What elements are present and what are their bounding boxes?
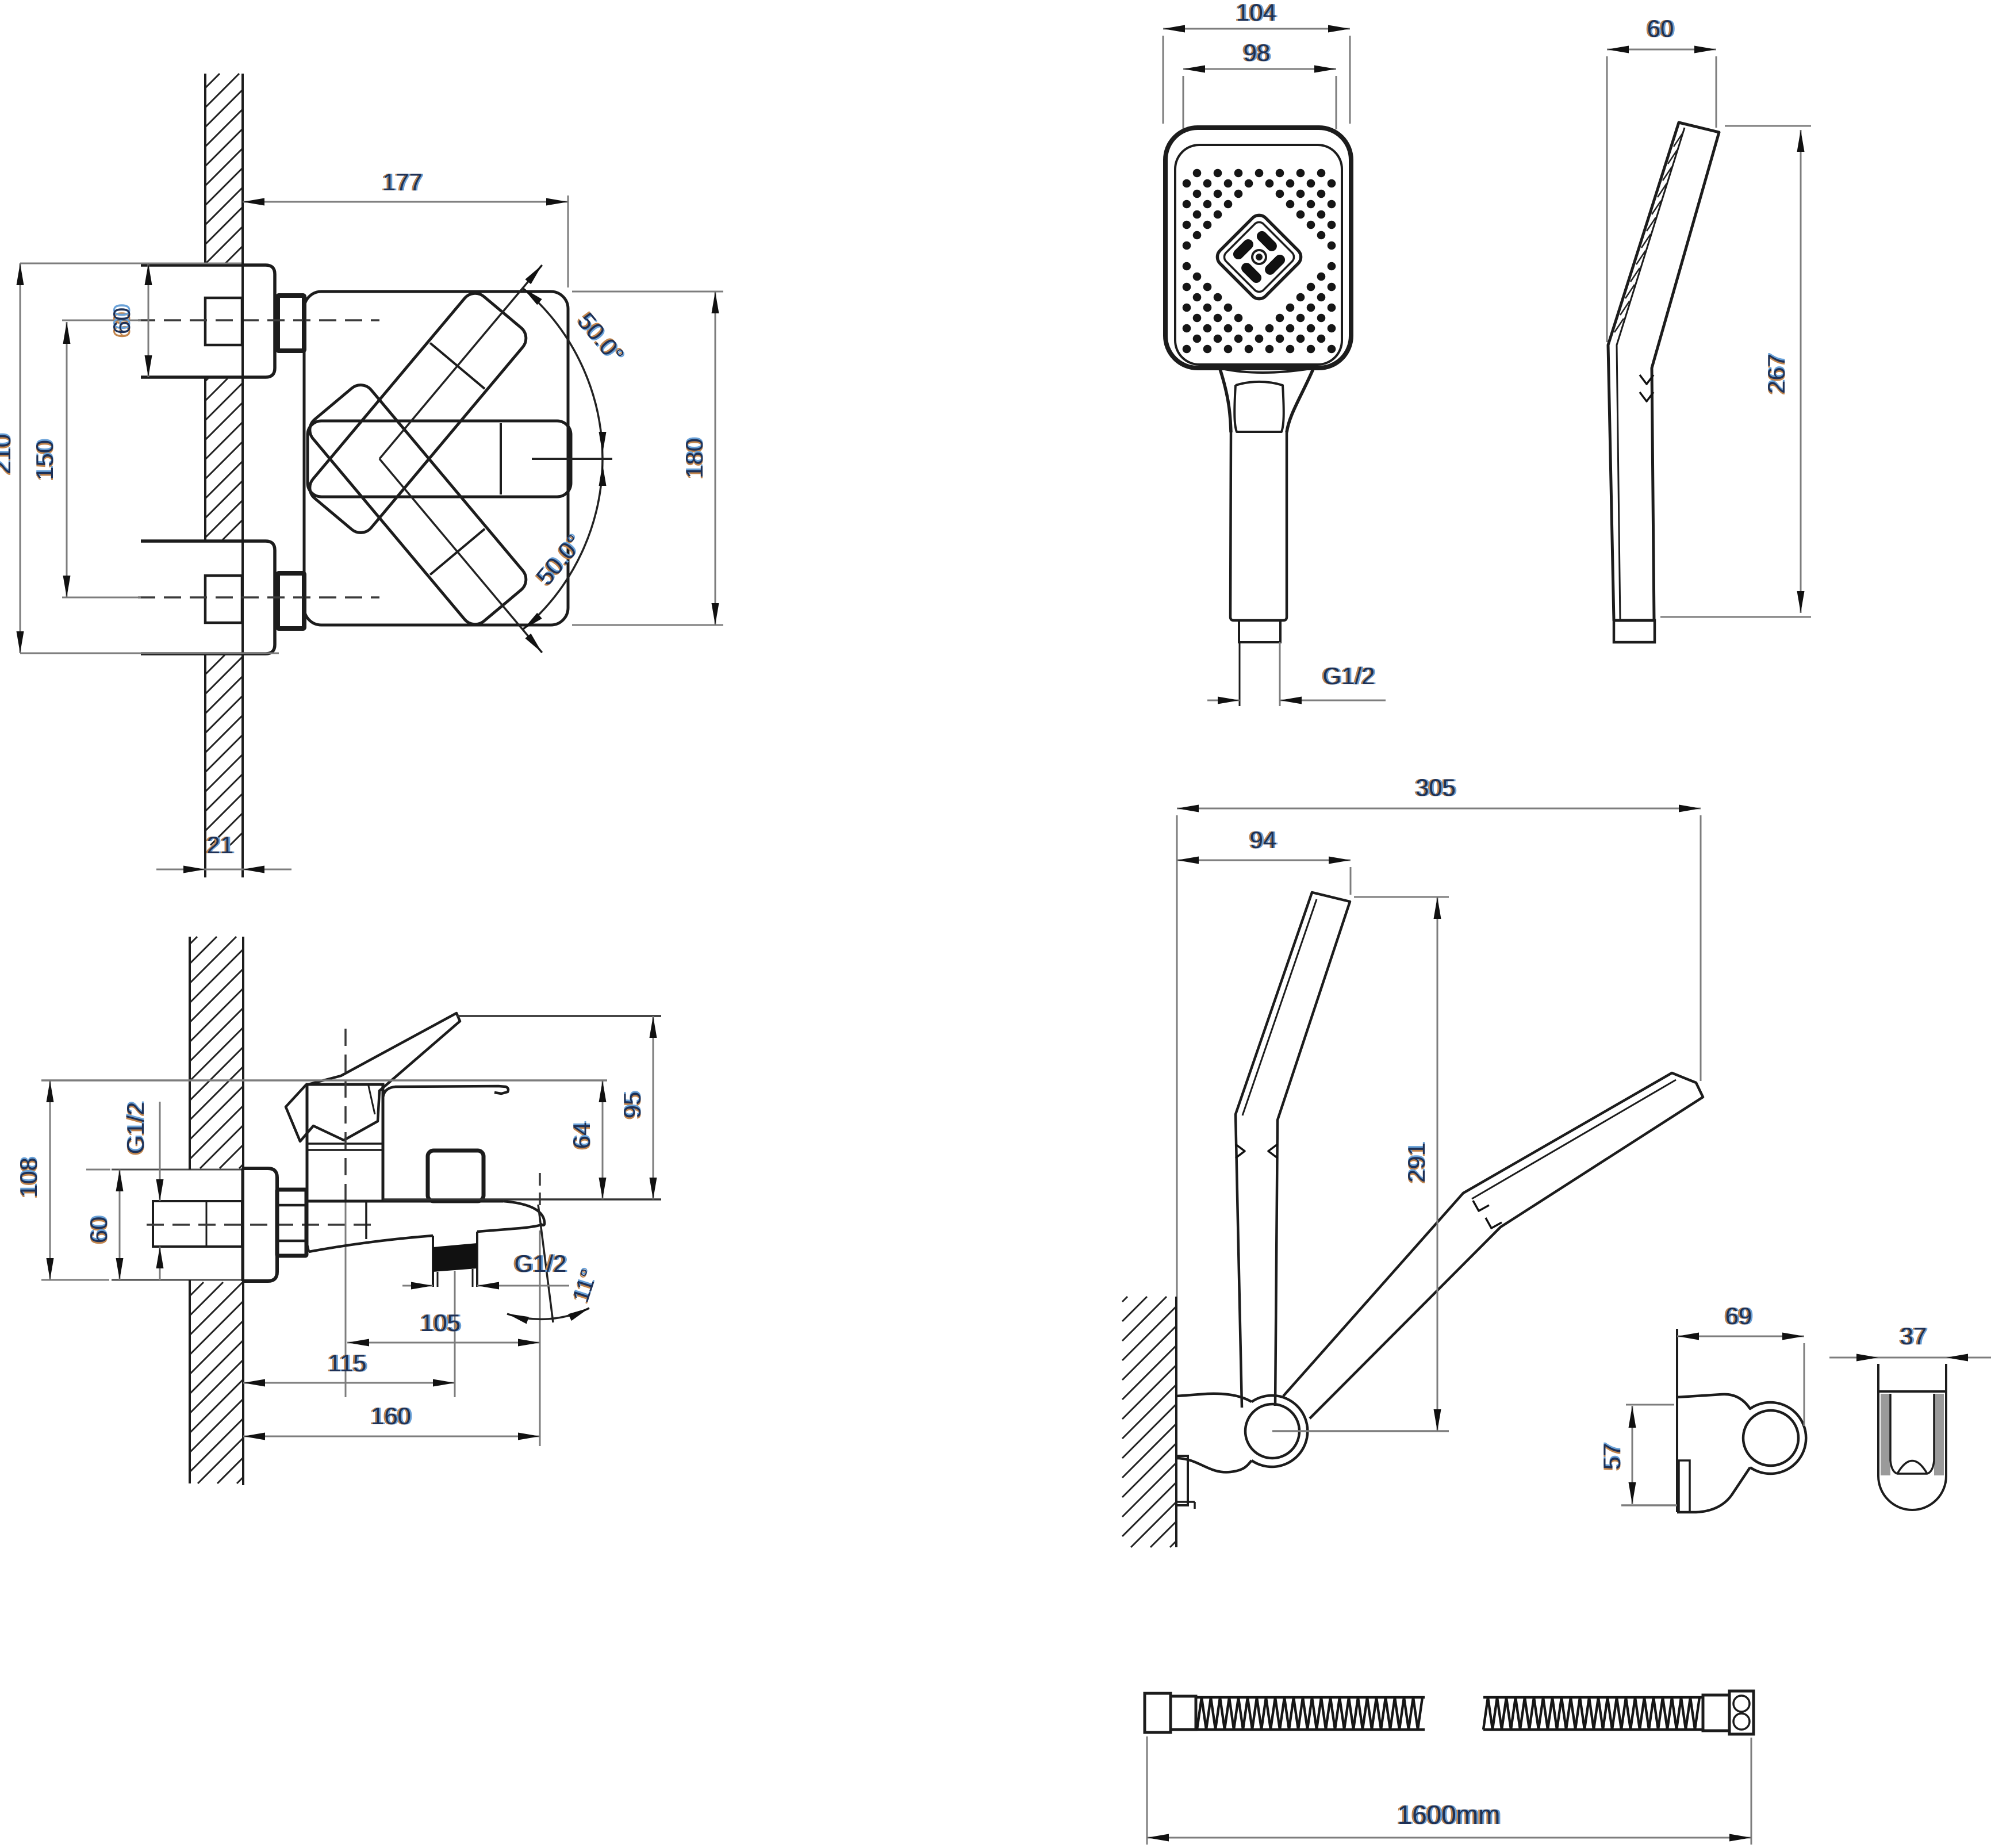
svg-text:108: 108 — [15, 1157, 42, 1198]
svg-text:57: 57 — [1598, 1443, 1625, 1470]
svg-text:210: 210 — [0, 434, 16, 474]
svg-text:60: 60 — [85, 1217, 112, 1244]
svg-text:64: 64 — [568, 1122, 595, 1149]
svg-text:115: 115 — [328, 1349, 367, 1377]
svg-text:160: 160 — [371, 1402, 411, 1429]
svg-text:21: 21 — [207, 831, 234, 858]
svg-text:G1/2: G1/2 — [122, 1102, 149, 1154]
svg-text:104: 104 — [1236, 0, 1276, 26]
svg-text:180: 180 — [681, 438, 708, 478]
svg-text:37: 37 — [1900, 1322, 1927, 1349]
svg-text:291: 291 — [1403, 1142, 1430, 1183]
svg-text:177: 177 — [382, 168, 423, 195]
svg-text:G1/2: G1/2 — [514, 1250, 566, 1277]
svg-text:105: 105 — [420, 1309, 461, 1336]
svg-text:94: 94 — [1250, 826, 1277, 853]
svg-text:60: 60 — [1647, 15, 1674, 42]
svg-text:1600mm: 1600mm — [1398, 1800, 1501, 1830]
svg-text:305: 305 — [1415, 774, 1456, 801]
svg-text:98: 98 — [1244, 39, 1271, 66]
svg-text:267: 267 — [1763, 354, 1790, 394]
svg-text:150: 150 — [31, 440, 58, 480]
svg-text:69: 69 — [1725, 1302, 1752, 1329]
svg-text:60: 60 — [108, 308, 135, 335]
svg-text:G1/2: G1/2 — [1322, 662, 1375, 689]
svg-text:95: 95 — [619, 1092, 646, 1119]
